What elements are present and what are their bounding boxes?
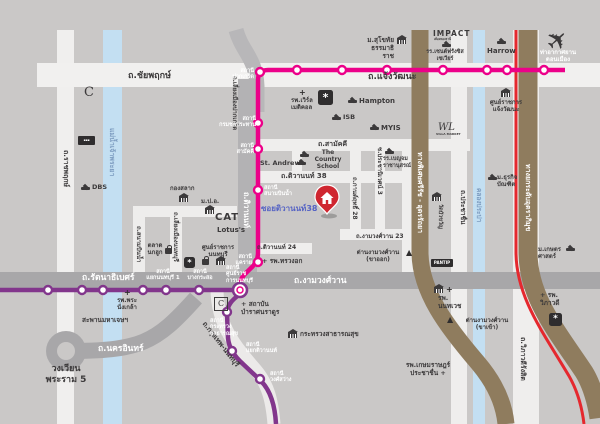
- road-label-tiwanon-38: ถ.ติวานนท์ 38: [281, 172, 327, 180]
- pantip-logo: PANTIP: [431, 259, 453, 267]
- station-dot-bang-kraso: [195, 286, 203, 294]
- road-label-kan-rit-28: ถ.กานต์ฤทธิ์ 28: [351, 177, 358, 220]
- toll-gate-icon: ▲: [406, 249, 412, 257]
- location-map: ✈ ถ.ชัยพฤกษ์ ถ.แจ้งวัฒนะ ถ.สามัคคี ถ.ติว…: [0, 0, 600, 424]
- label-country-school: The Country School: [308, 149, 348, 171]
- station-label-moph: สถานี กระทรวง สาธารณสุข: [210, 318, 238, 337]
- label-govt-complex-chaengwattana: ศูนย์ราชการ แจ้งวัฒนะ: [486, 99, 526, 113]
- shopping-bag-icon: [202, 259, 209, 265]
- central-mall-logo-icon: *: [318, 90, 333, 105]
- label-soi-tiwanon-38: ซอยติวานนท์38: [261, 204, 317, 214]
- station-dot: [78, 286, 86, 294]
- label-isb-school: ISB: [343, 114, 355, 122]
- station-dot: [139, 286, 147, 294]
- road-label-nakhon-in: ถ.นครอินทร์: [98, 344, 144, 354]
- road-label-tiwanon: ถ.ติวานนท์: [242, 192, 251, 228]
- station-dot: [540, 66, 548, 74]
- road-label-ngamwongwan-23: ถ.งามวงศ์วาน 23: [356, 233, 404, 240]
- label-cat-telecom: CAT: [215, 212, 239, 224]
- label-dbs-school: DBS: [92, 184, 107, 192]
- road-samakkhi: [257, 139, 470, 151]
- school-icon: [385, 151, 394, 154]
- label-bamrat-institute: + สถาบัน บำราศนราดูร: [241, 301, 279, 317]
- building-icon: [205, 208, 214, 214]
- road-label-ngamwongwan: ถ.งามวงศ์วาน: [294, 276, 347, 286]
- label-rama5-circle: วงเวียน พระราม 5: [36, 364, 96, 386]
- road-label-chaiyaphruek: ถ.ชัยพฤกษ์: [128, 71, 171, 82]
- c-brand-box-logo: C: [214, 297, 228, 311]
- school-icon: [370, 127, 379, 130]
- road-label-ratchaphruek: ถ.ราชพฤกษ์: [62, 150, 70, 187]
- label-myis-school: MYIS: [381, 124, 401, 132]
- label-khlong-prapa: คลองประปา: [474, 188, 482, 222]
- station-dot: [439, 66, 447, 74]
- label-sukhothai-university: ม.สุโขทัย ธรรมาธิราช: [360, 37, 394, 60]
- label-kasemrad-hospital: รพ.เกษมราษฎร์ ประชาชื่น +: [399, 362, 457, 378]
- road-label-prachachuen: ถ.ประชาชื่น: [458, 190, 466, 224]
- label-chest-hospital: + รพ.ทรวงอก: [262, 258, 302, 266]
- label-owl-market: ตลาด นกฮูก: [146, 242, 164, 256]
- road-label-chaengwattana: ถ.แจ้งวัฒนะ: [368, 72, 417, 83]
- label-kong-salak: กองสลาก: [170, 185, 195, 192]
- label-impact-sub: เมืองทองธานี: [434, 38, 451, 42]
- market-bag-icon: [165, 248, 172, 254]
- label-toll-gate-outbound: ด่านงามวงศ์วาน (ขาออก): [348, 249, 408, 263]
- pin-house-door: [326, 200, 328, 204]
- road-label-rattanathibet: ถ.รัตนาธิเบศร์: [82, 273, 135, 283]
- station-dot: [44, 286, 52, 294]
- road-label-viphavadi: ถ.วิภาวดีรังสิต: [519, 337, 527, 381]
- station-label-bang-kraso: สถานี บางกระสอ: [184, 269, 216, 282]
- road-label-prachaniwet-3: ซ.ประชานิเวศน์ 3: [376, 147, 383, 195]
- label-toll-gate-inbound: ด่านงามวงศ์วาน (ขาเข้า): [458, 317, 516, 331]
- road-label-liang-non: ถ.เลี่ยงเมืองนนทบุรี: [172, 212, 179, 262]
- hospital-plus-icon: +: [299, 89, 306, 97]
- government-building-icon: [501, 91, 510, 97]
- road-label-tiwanon-24: ถ.ติวานนท์ 24: [257, 244, 296, 251]
- station-dot-yaek-non1: [162, 286, 170, 294]
- station-label-sanambinnam: สถานี สนามบินน้ำ: [264, 185, 292, 198]
- c-brand-logo: C: [84, 85, 94, 101]
- university-icon: [488, 177, 497, 180]
- university-icon: [566, 248, 575, 251]
- label-nonthavej-hospital: รพ. นนทเวช: [438, 295, 461, 311]
- label-lotus: Lotus's: [217, 226, 245, 234]
- station-dot: [503, 66, 511, 74]
- chao-phraya-river: [103, 30, 122, 424]
- hospital-plus-icon: +: [124, 289, 131, 297]
- station-label-krom-chon: สถานี กรมชลประทาน: [218, 116, 256, 129]
- station-dot: [293, 66, 301, 74]
- road-label-samakkhi: ถ.สามัคคี: [318, 140, 347, 148]
- station-dot-samakkhi: [254, 145, 262, 153]
- label-maha-chet-bridge: สะพานมหาเจษฯ: [82, 317, 128, 325]
- station-label-pakkret: สถานี ปากเกร็ด: [224, 68, 254, 81]
- label-st-francis-school: รร.เซนต์ฟรังซิส เซเวียร์: [424, 49, 466, 62]
- school-icon: [348, 100, 357, 103]
- school-icon: [332, 117, 341, 120]
- toll-gate-icon: ▲: [447, 316, 453, 324]
- station-dot-sanambinnam: [254, 186, 262, 194]
- school-icon: [297, 162, 306, 165]
- hospital-plus-icon: +: [446, 286, 453, 294]
- station-label-yaek-tiwanon: สถานี แยกติวานนท์: [246, 342, 277, 355]
- station-dot: [99, 286, 107, 294]
- station-label-govt-center-non: สถานี ศูนย์ราช การนนทบุรี: [226, 265, 253, 284]
- school-icon: [300, 154, 309, 157]
- temple-icon: [432, 195, 441, 201]
- road-label-sanambinnam: ถ.สนามบินน้ำ: [135, 226, 142, 262]
- station-interchange-govt-center-non: [233, 283, 247, 297]
- wl-logo-sub: VILLA MARKET: [436, 133, 461, 137]
- label-world-medical-hospital: รพ.เวิร์ล เมดิคอล: [291, 97, 313, 111]
- department-store-icon: [216, 259, 225, 265]
- label-benjama-school: รร.เบญจม ราชานุสรณ์: [383, 156, 411, 169]
- government-building-icon: [179, 196, 188, 202]
- label-vibhavadi-hospital: + รพ. วิภาวดี: [540, 292, 559, 308]
- pin-shadow: [321, 214, 337, 219]
- station-dot-wong-sawang: [256, 375, 264, 383]
- brand-badge-icon: ▪▪▪: [78, 136, 95, 145]
- label-uttraphimuk-tollway: ทางยกระดับอุตราภิมุข: [524, 164, 532, 231]
- school-icon: [81, 187, 90, 190]
- station-dot-khae-rai: [254, 258, 262, 266]
- label-chao-phraya-river: แม่น้ำเจ้าพระยา: [108, 128, 116, 176]
- label-don-mueang-airport: ท่าอากาศยาน ดอนเมือง: [536, 49, 580, 63]
- label-kasetsart-university: ม.เกษตร ศาสตร์: [538, 246, 561, 260]
- station-dot: [483, 66, 491, 74]
- school-icon: [497, 41, 506, 44]
- rama5-roundabout-center: [57, 342, 75, 360]
- university-building-icon: [397, 38, 406, 44]
- label-wat-bua-khwan: วัดบัวขวัญ: [436, 204, 443, 229]
- label-srirat-expressway: ทางพิเศษศรีรัช - อุดรรัถยา: [416, 152, 424, 233]
- label-ministry-public-health: กระทรวงสาธารณสุข: [300, 331, 359, 339]
- school-icon: [442, 44, 451, 47]
- road-tiwanon: [238, 79, 257, 279]
- hospital-logo-icon: [434, 287, 443, 293]
- station-dot-pakkret: [256, 68, 264, 76]
- mall-logo-icon: *: [184, 257, 195, 268]
- label-dhurakij-university: ม.ธุรกิจ บัณฑิต: [497, 174, 517, 188]
- station-label-wong-sawang: สถานี วงศ์สว่าง: [270, 371, 291, 384]
- station-label-yaek-non1: สถานี แยกนนทบุรี 1: [143, 269, 183, 282]
- brand-logo-icon: *: [549, 313, 562, 326]
- label-phra-nangklao-hospital: รพ.พระ นั่งเกล้า: [112, 297, 142, 311]
- label-harrow: Harrow: [487, 47, 516, 55]
- station-label-samakkhi: สถานี สามัคคี: [230, 143, 254, 156]
- label-hampton: Hampton: [359, 97, 395, 105]
- ministry-building-icon: [288, 332, 297, 338]
- station-dot: [338, 66, 346, 74]
